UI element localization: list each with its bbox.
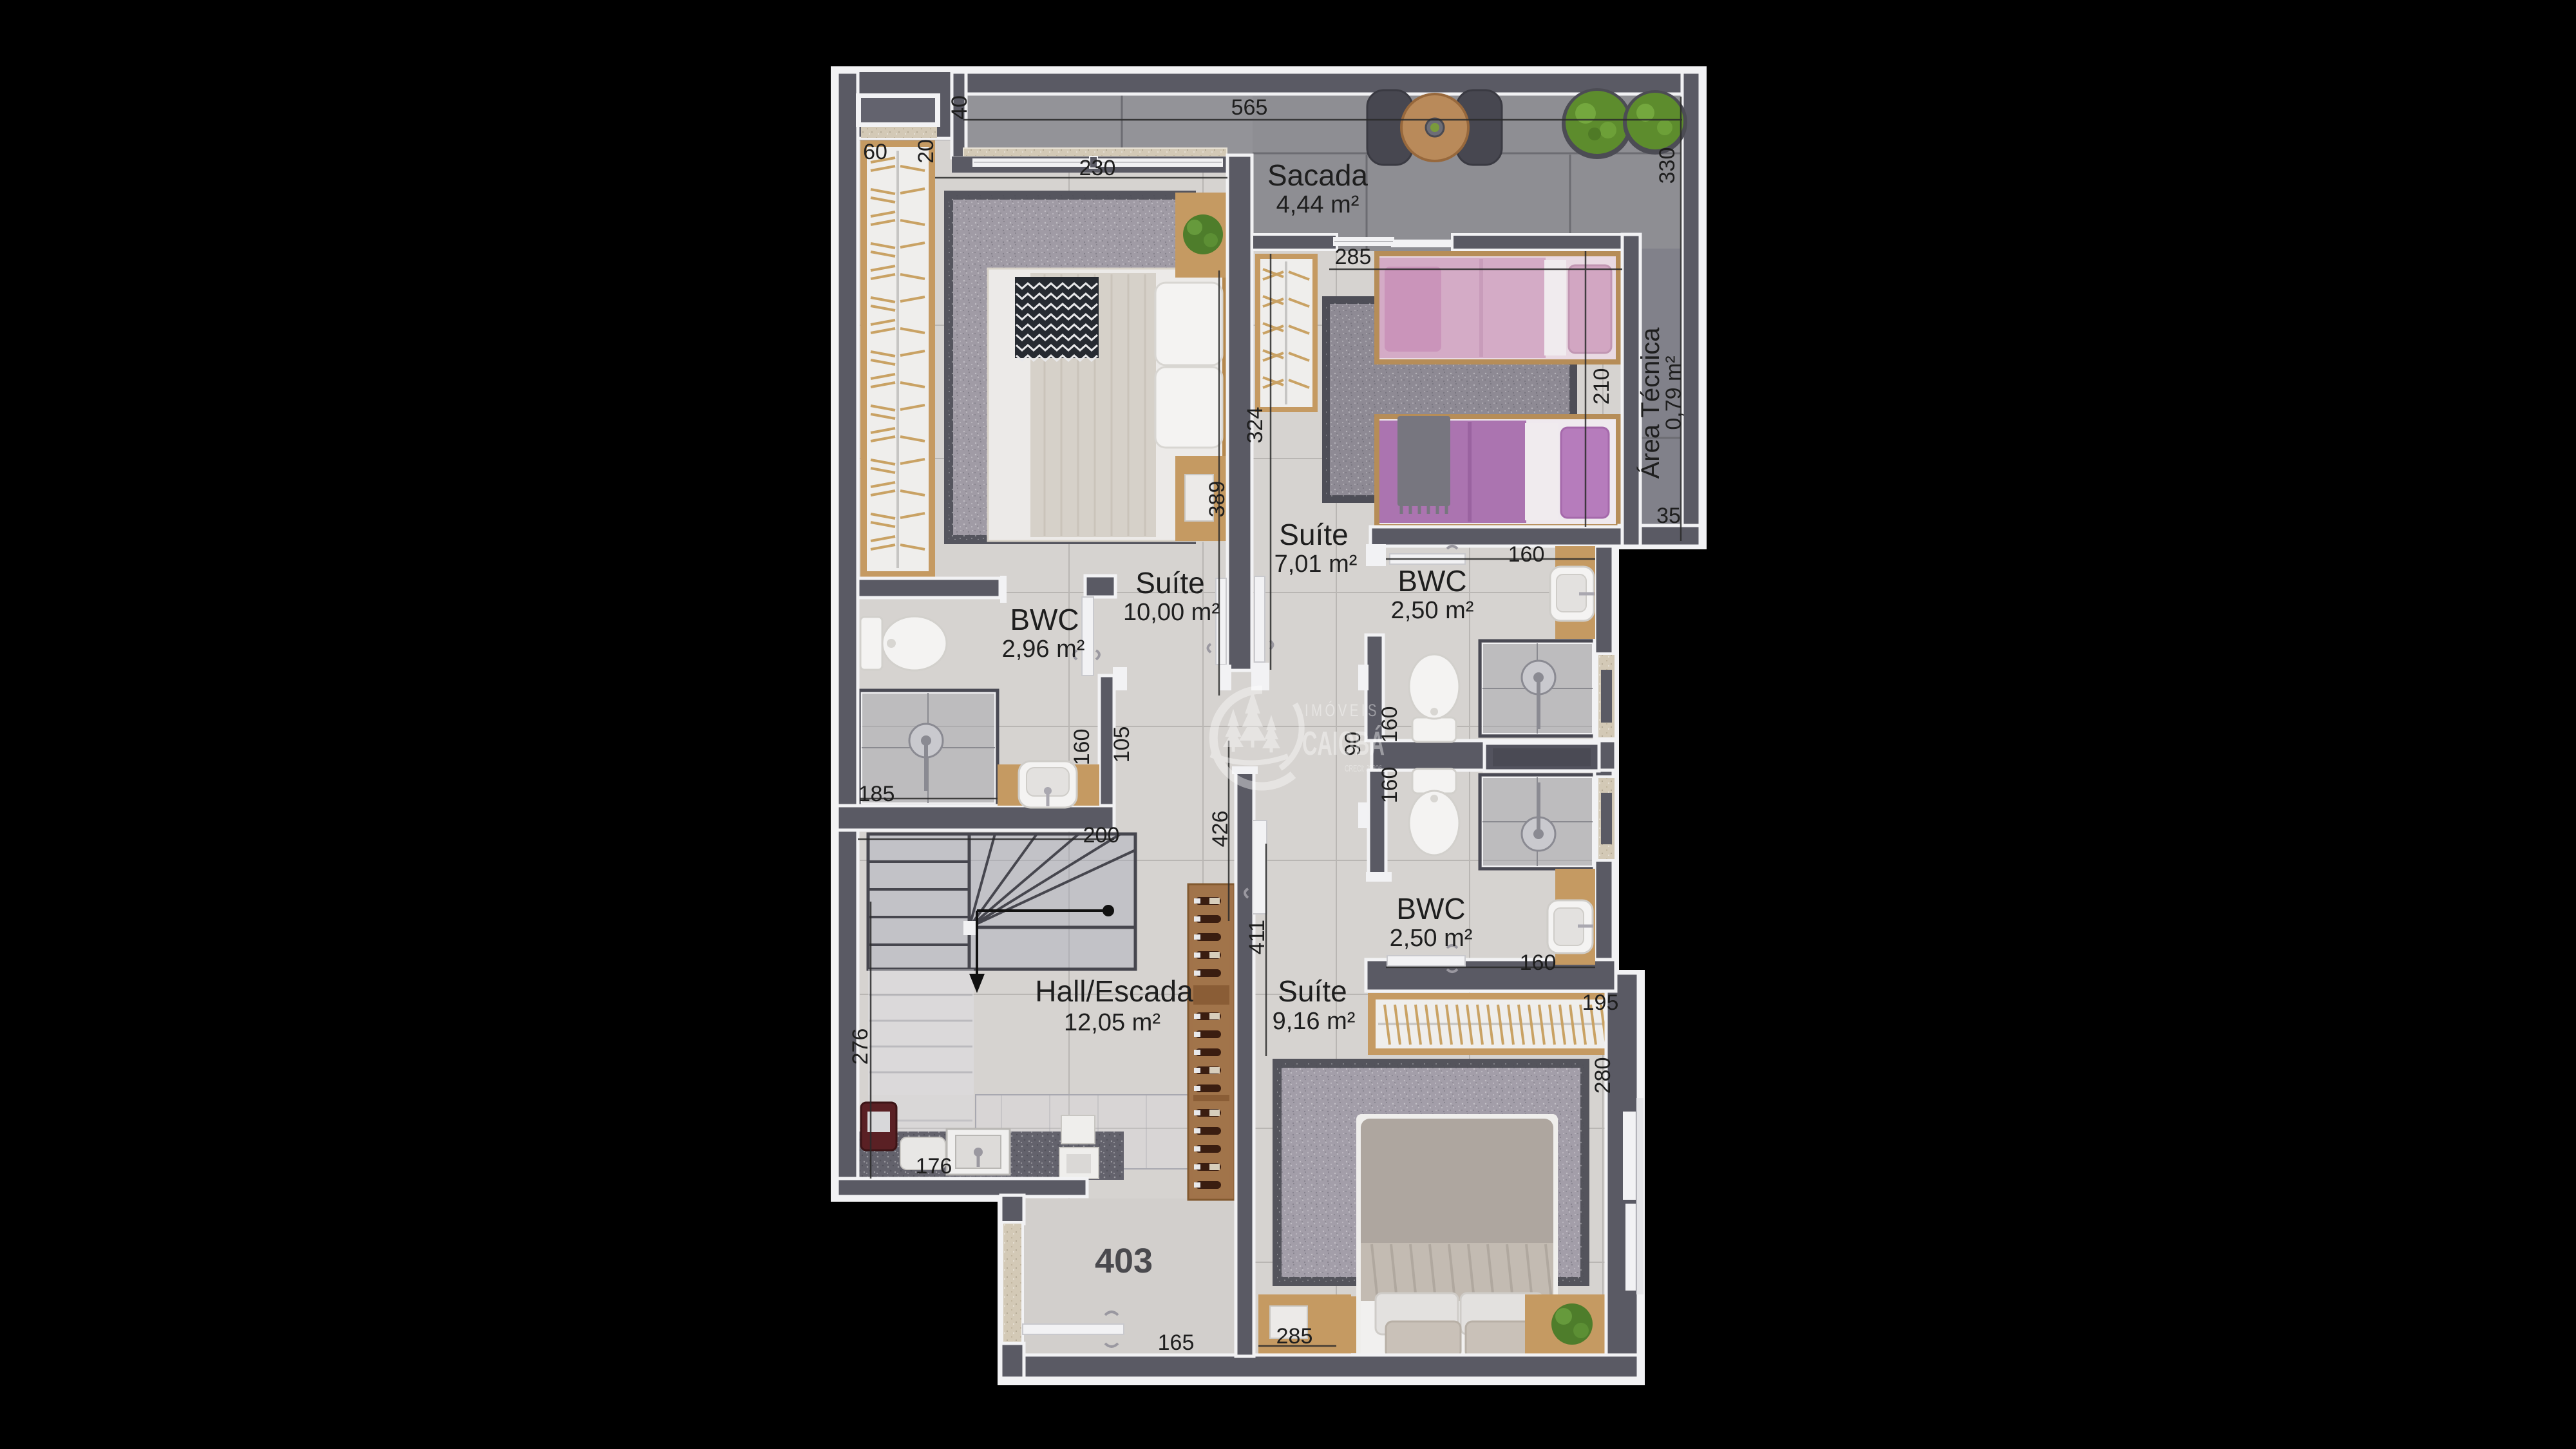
svg-text:10,00 m²: 10,00 m² — [1123, 599, 1220, 626]
svg-text:426: 426 — [1208, 811, 1233, 848]
svg-text:20: 20 — [914, 139, 938, 164]
svg-text:BWC: BWC — [1396, 892, 1465, 925]
svg-text:CRECI: J8806: CRECI: J8806 — [1345, 763, 1382, 774]
svg-text:7,01 m²: 7,01 m² — [1274, 551, 1358, 578]
svg-text:200: 200 — [1083, 823, 1120, 848]
svg-text:403: 403 — [1095, 1242, 1153, 1280]
svg-text:Área Técnica: Área Técnica — [1636, 327, 1665, 479]
svg-text:Suíte: Suíte — [1279, 518, 1348, 551]
svg-text:4,44 m²: 4,44 m² — [1276, 191, 1359, 218]
svg-text:Suíte: Suíte — [1278, 974, 1347, 1008]
svg-text:160: 160 — [1520, 951, 1557, 975]
svg-text:230: 230 — [1079, 156, 1116, 180]
svg-text:565: 565 — [1231, 95, 1268, 120]
svg-text:411: 411 — [1245, 920, 1269, 954]
svg-text:285: 285 — [1335, 245, 1372, 269]
svg-text:389: 389 — [1205, 481, 1229, 518]
svg-text:185: 185 — [858, 782, 895, 806]
svg-text:Hall/Escada: Hall/Escada — [1035, 974, 1193, 1008]
svg-text:105: 105 — [1110, 726, 1134, 763]
svg-text:BWC: BWC — [1010, 603, 1079, 636]
svg-text:285: 285 — [1276, 1324, 1313, 1349]
svg-text:35: 35 — [1656, 504, 1681, 528]
svg-text:195: 195 — [1582, 990, 1619, 1015]
svg-text:CAIOBÁ: CAIOBÁ — [1302, 725, 1385, 762]
svg-text:324: 324 — [1243, 407, 1267, 444]
svg-text:160: 160 — [1508, 542, 1545, 567]
svg-text:BWC: BWC — [1397, 564, 1466, 598]
svg-text:40: 40 — [947, 95, 972, 120]
svg-text:Sacada: Sacada — [1267, 158, 1368, 192]
svg-text:0,79 m²: 0,79 m² — [1662, 355, 1686, 430]
svg-text:12,05 m²: 12,05 m² — [1064, 1009, 1160, 1036]
svg-text:Suíte: Suíte — [1135, 566, 1204, 600]
svg-text:60: 60 — [863, 140, 887, 164]
svg-text:165: 165 — [1158, 1331, 1195, 1355]
svg-text:2,96 m²: 2,96 m² — [1002, 636, 1085, 663]
svg-text:2,50 m²: 2,50 m² — [1390, 925, 1473, 952]
svg-text:160: 160 — [1070, 729, 1094, 766]
svg-text:IMÓVEIS: IMÓVEIS — [1305, 700, 1379, 720]
svg-text:210: 210 — [1589, 368, 1614, 405]
svg-text:2,50 m²: 2,50 m² — [1391, 597, 1474, 624]
svg-text:280: 280 — [1591, 1057, 1615, 1094]
svg-text:176: 176 — [916, 1154, 952, 1179]
svg-text:9,16 m²: 9,16 m² — [1273, 1008, 1356, 1035]
svg-text:330: 330 — [1655, 147, 1680, 184]
svg-text:276: 276 — [848, 1028, 873, 1065]
